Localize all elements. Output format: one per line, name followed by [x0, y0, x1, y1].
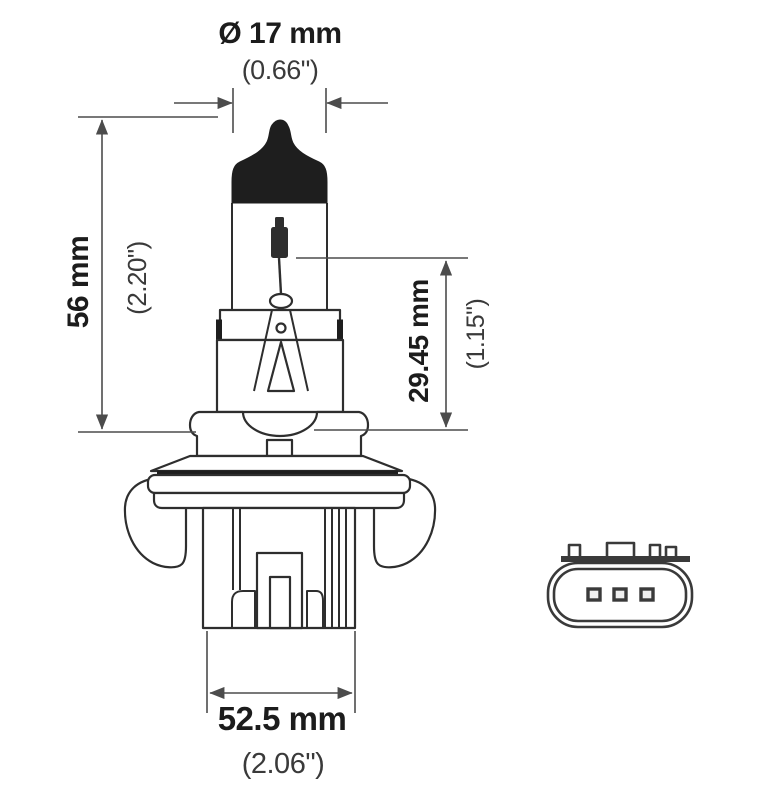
light-center-metric-label: 29.45 mm [403, 279, 434, 403]
filament [270, 217, 292, 308]
connector-pin [614, 589, 626, 600]
dimension-overall-length: 56 mm (2.20") [62, 117, 218, 432]
light-center-imperial-label: (1.15") [462, 299, 490, 370]
dimension-base-width: 52.5 mm (2.06") [207, 631, 355, 780]
connector-front-view [548, 543, 692, 627]
overall-length-metric-label: 56 mm [62, 236, 95, 329]
support-ring [270, 294, 292, 308]
diameter-metric-label: Ø 17 mm [218, 17, 341, 50]
connector-pins [588, 589, 653, 600]
base-width-metric-label: 52.5 mm [218, 700, 347, 737]
connector-pin [588, 589, 600, 600]
bulb-dimension-diagram: Ø 17 mm (0.66") 56 mm (2.20") 29.45 mm (… [0, 0, 759, 800]
base-flare [151, 456, 402, 471]
mounting-flange [148, 475, 410, 493]
bulb-side-view [125, 120, 435, 628]
diameter-imperial-label: (0.66") [242, 55, 319, 85]
collar-key [267, 440, 292, 456]
terminal-slot [270, 577, 290, 628]
filament-wire [279, 258, 281, 294]
filament-body [271, 227, 288, 258]
dimension-diameter: Ø 17 mm (0.66") [174, 17, 388, 133]
support-pivot [277, 324, 286, 333]
flange-lower-step [154, 493, 404, 508]
filament-tip [275, 217, 284, 228]
connector-pin [641, 589, 653, 600]
tip-cap [232, 120, 327, 203]
overall-length-imperial-label: (2.20") [122, 241, 152, 315]
base-width-imperial-label: (2.06") [242, 748, 325, 780]
